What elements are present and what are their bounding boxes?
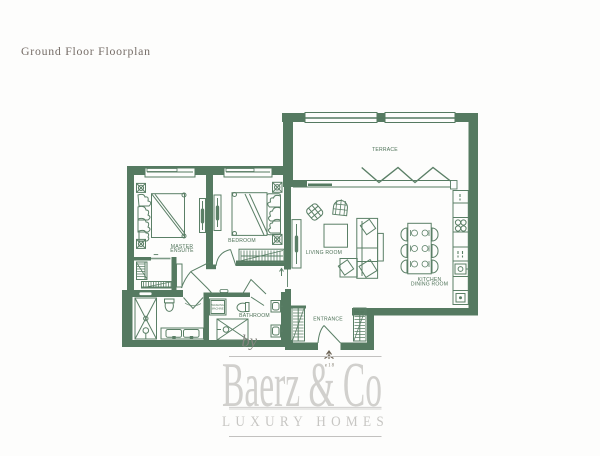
svg-text:WASHING: WASHING [212, 303, 224, 307]
svg-text:LUXURY HOMES: LUXURY HOMES [222, 414, 389, 430]
svg-text:BATHROOM: BATHROOM [239, 313, 270, 319]
svg-text:by: by [242, 332, 258, 351]
svg-text:Baerz & Co: Baerz & Co [222, 350, 382, 420]
svg-text:ENTRANCE: ENTRANCE [313, 317, 343, 323]
svg-text:TERRACE: TERRACE [372, 147, 398, 153]
svg-text:Ground Floor Floorplan: Ground Floor Floorplan [21, 44, 150, 58]
svg-text:BEDROOM: BEDROOM [228, 238, 256, 244]
svg-text:MACHINE: MACHINE [212, 307, 224, 311]
svg-text:ENSUITE: ENSUITE [170, 248, 194, 254]
svg-text:DINING ROOM: DINING ROOM [411, 282, 448, 288]
svg-text:LIVING ROOM: LIVING ROOM [306, 250, 342, 256]
